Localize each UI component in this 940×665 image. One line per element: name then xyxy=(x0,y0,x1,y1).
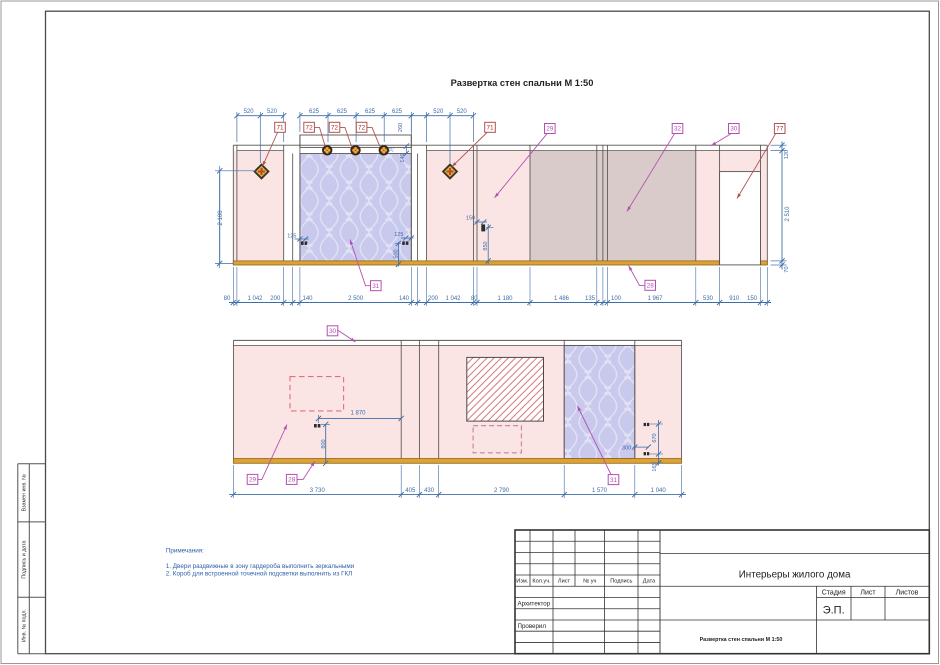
svg-text:Лист: Лист xyxy=(860,589,876,596)
svg-text:71: 71 xyxy=(276,125,284,132)
svg-text:30: 30 xyxy=(329,328,337,335)
svg-text:2. Короб для встроенной точечн: 2. Короб для встроенной точечной подсвет… xyxy=(166,570,353,578)
svg-text:2 500: 2 500 xyxy=(348,296,364,302)
svg-text:Примечания:: Примечания: xyxy=(166,548,204,555)
svg-text:200: 200 xyxy=(428,296,439,302)
svg-text:165: 165 xyxy=(652,462,658,471)
svg-text:29: 29 xyxy=(249,477,257,484)
svg-text:625: 625 xyxy=(337,109,348,115)
svg-text:Подпись и дата: Подпись и дата xyxy=(22,541,28,579)
svg-text:140: 140 xyxy=(399,296,410,302)
svg-text:Взамен инв. №: Взамен инв. № xyxy=(22,474,28,512)
svg-text:Проверил: Проверил xyxy=(518,623,547,630)
svg-text:Развертка стен спальни М 1:50: Развертка стен спальни М 1:50 xyxy=(700,637,783,643)
svg-text:72: 72 xyxy=(306,125,314,132)
svg-text:1. Двери раздвижные в зону гар: 1. Двери раздвижные в зону гардероба вып… xyxy=(166,562,355,570)
svg-text:31: 31 xyxy=(372,283,380,290)
svg-text:520: 520 xyxy=(267,109,278,115)
svg-text:200: 200 xyxy=(270,296,281,302)
svg-text:80: 80 xyxy=(471,296,478,302)
svg-text:100: 100 xyxy=(611,296,622,302)
svg-text:405: 405 xyxy=(405,488,416,494)
svg-text:Подпись: Подпись xyxy=(610,579,632,585)
svg-text:120: 120 xyxy=(784,150,790,159)
svg-text:2 100: 2 100 xyxy=(218,210,224,226)
svg-text:29: 29 xyxy=(546,126,554,133)
svg-text:1 486: 1 486 xyxy=(554,296,570,302)
svg-text:850: 850 xyxy=(483,241,489,250)
svg-text:Лист: Лист xyxy=(558,579,571,585)
svg-text:1 967: 1 967 xyxy=(647,296,663,302)
svg-text:1 570: 1 570 xyxy=(592,488,608,494)
svg-text:140: 140 xyxy=(302,296,313,302)
svg-text:72: 72 xyxy=(331,125,339,132)
svg-text:1 180: 1 180 xyxy=(497,296,513,302)
svg-text:1 042: 1 042 xyxy=(247,296,263,302)
svg-text:1 040: 1 040 xyxy=(651,488,667,494)
svg-text:75: 75 xyxy=(389,147,395,153)
svg-text:№ уч: № уч xyxy=(583,579,596,585)
svg-text:1 870: 1 870 xyxy=(350,411,366,417)
svg-text:28: 28 xyxy=(288,477,296,484)
svg-text:125: 125 xyxy=(394,232,403,238)
svg-text:520: 520 xyxy=(457,109,468,115)
svg-text:125: 125 xyxy=(287,233,296,239)
svg-text:72: 72 xyxy=(358,125,366,132)
svg-text:Изм.: Изм. xyxy=(516,579,528,585)
svg-text:Инв. № подл.: Инв. № подл. xyxy=(22,609,28,642)
svg-text:1 042: 1 042 xyxy=(445,296,461,302)
svg-text:150: 150 xyxy=(466,216,475,222)
svg-text:520: 520 xyxy=(244,109,255,115)
svg-text:260: 260 xyxy=(398,123,404,132)
svg-text:77: 77 xyxy=(776,126,784,133)
svg-text:2 510: 2 510 xyxy=(785,206,791,222)
svg-text:520: 520 xyxy=(433,109,444,115)
svg-text:800: 800 xyxy=(321,439,327,448)
svg-text:300: 300 xyxy=(622,445,631,451)
svg-text:530: 530 xyxy=(703,296,714,302)
svg-text:625: 625 xyxy=(365,109,376,115)
svg-text:Стадия: Стадия xyxy=(822,589,846,596)
svg-text:71: 71 xyxy=(486,125,494,132)
svg-text:Кол.уч.: Кол.уч. xyxy=(532,579,551,585)
svg-text:625: 625 xyxy=(392,109,403,115)
svg-text:Дата: Дата xyxy=(643,579,656,585)
svg-text:32: 32 xyxy=(674,126,682,133)
svg-text:140: 140 xyxy=(400,153,406,162)
svg-text:625: 625 xyxy=(309,109,320,115)
svg-text:430: 430 xyxy=(424,488,435,494)
svg-text:31: 31 xyxy=(610,477,618,484)
svg-text:30: 30 xyxy=(730,126,738,133)
svg-text:Э.П.: Э.П. xyxy=(823,605,845,617)
svg-text:3 730: 3 730 xyxy=(310,488,326,494)
svg-text:70: 70 xyxy=(784,266,790,272)
svg-text:Архитектор: Архитектор xyxy=(518,600,551,607)
svg-text:500: 500 xyxy=(394,249,400,258)
svg-text:Развертка стен спальни М 1:50: Развертка стен спальни М 1:50 xyxy=(451,78,594,88)
svg-text:910: 910 xyxy=(729,296,740,302)
svg-text:Интерьеры жилого дома: Интерьеры жилого дома xyxy=(739,569,851,580)
svg-text:80: 80 xyxy=(224,296,231,302)
svg-text:28: 28 xyxy=(647,283,655,290)
svg-text:135: 135 xyxy=(585,296,596,302)
svg-text:Листов: Листов xyxy=(896,589,919,596)
svg-text:150: 150 xyxy=(747,296,758,302)
svg-text:2 790: 2 790 xyxy=(494,488,510,494)
svg-text:670: 670 xyxy=(652,433,658,442)
